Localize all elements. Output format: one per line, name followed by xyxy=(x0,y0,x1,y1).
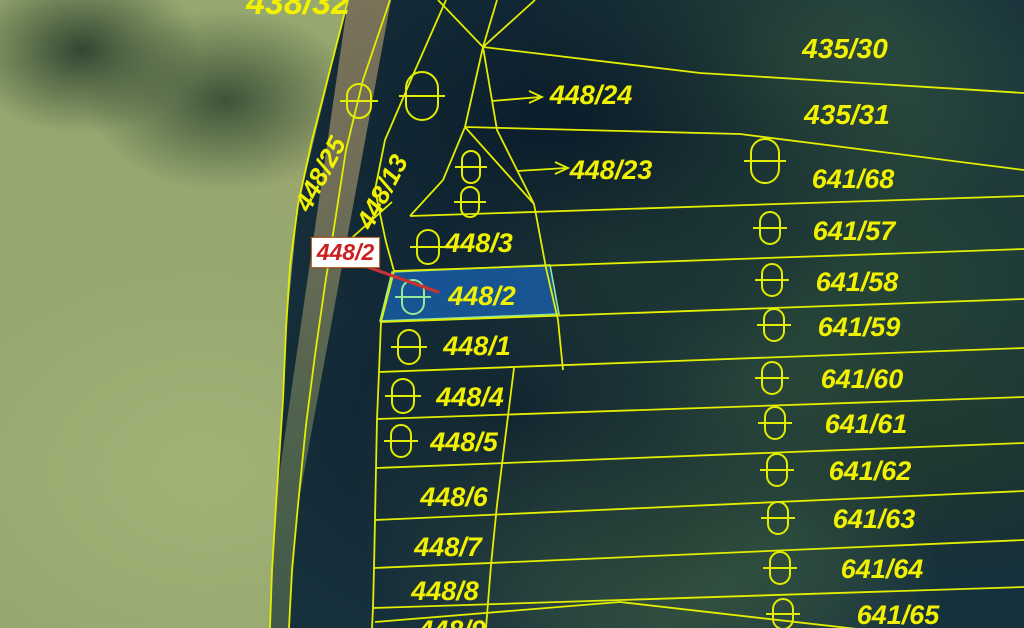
oval-marker-symbol xyxy=(761,502,795,534)
oval-marker-symbol xyxy=(755,264,789,296)
oval-marker-symbol xyxy=(753,212,787,244)
parcel-label-448-5: 448/5 xyxy=(429,427,499,457)
parcel-label-641-64: 641/64 xyxy=(841,554,924,584)
oval-marker-symbol xyxy=(340,84,378,118)
parcel-label-448-4: 448/4 xyxy=(435,382,504,412)
oval-marker-symbol xyxy=(454,187,486,217)
cadastral-map-view[interactable]: 438/32435/30435/31448/24448/23448/25448/… xyxy=(0,0,1024,628)
parcel-label-448-6: 448/6 xyxy=(419,482,489,512)
parcel-label-641-63: 641/63 xyxy=(833,504,916,534)
boundary-line-fan-1 xyxy=(438,0,483,47)
parcel-label-641-58: 641/58 xyxy=(816,267,899,297)
oval-marker-symbol xyxy=(385,379,421,413)
boundary-line-strip-1 xyxy=(410,196,1024,216)
oval-marker-symbol xyxy=(399,72,445,120)
boundary-line-node-up xyxy=(465,47,483,127)
oval-marker-symbol xyxy=(384,425,418,457)
parcel-label-438-32: 438/32 xyxy=(245,0,350,22)
parcel-label-641-62: 641/62 xyxy=(829,456,912,486)
parcel-label-641-65: 641/65 xyxy=(857,600,941,628)
oval-marker-symbol xyxy=(760,454,794,486)
boundary-line-path-left xyxy=(270,0,348,628)
parcel-label-435-30: 435/30 xyxy=(801,33,888,64)
parcel-label-448-8: 448/8 xyxy=(410,576,479,606)
oval-marker-symbol xyxy=(766,599,800,628)
boundary-line-forest-boundary xyxy=(465,127,1024,170)
parcel-label-448-1: 448/1 xyxy=(442,331,511,361)
parcel-label-448-23: 448/23 xyxy=(569,155,653,185)
selected-parcel-callout-label: 448/2 xyxy=(317,239,375,266)
oval-marker-symbol xyxy=(391,330,427,364)
parcel-label-448-7: 448/7 xyxy=(413,532,484,562)
parcel-label-448-3: 448/3 xyxy=(444,228,513,258)
boundary-line-node-right xyxy=(465,127,534,204)
oval-marker-symbol xyxy=(744,139,786,183)
parcel-label-448-2: 448/2 xyxy=(447,281,516,311)
parcel-overlay: 438/32435/30435/31448/24448/23448/25448/… xyxy=(0,0,1024,628)
parcel-label-641-59: 641/59 xyxy=(818,312,901,342)
parcel-label-641-60: 641/60 xyxy=(821,364,904,394)
oval-marker-symbol xyxy=(757,309,791,341)
oval-marker-symbol xyxy=(758,407,792,439)
parcel-label-641-68: 641/68 xyxy=(812,164,895,194)
oval-marker-symbol xyxy=(410,230,446,264)
parcel-label-448-24: 448/24 xyxy=(549,80,633,110)
parcel-label-435-31: 435/31 xyxy=(803,99,890,130)
parcel-label-641-57: 641/57 xyxy=(813,216,898,246)
selected-parcel-callout: 448/2 xyxy=(311,237,380,268)
parcel-label-448-9: 448/9 xyxy=(417,615,486,628)
parcel-label-448-13: 448/13 xyxy=(350,149,415,235)
oval-marker-symbol xyxy=(763,552,797,584)
parcel-label-641-61: 641/61 xyxy=(825,409,908,439)
oval-marker-symbol xyxy=(755,362,789,394)
oval-marker-symbol xyxy=(455,151,487,183)
arrow-448-23 xyxy=(517,168,566,171)
